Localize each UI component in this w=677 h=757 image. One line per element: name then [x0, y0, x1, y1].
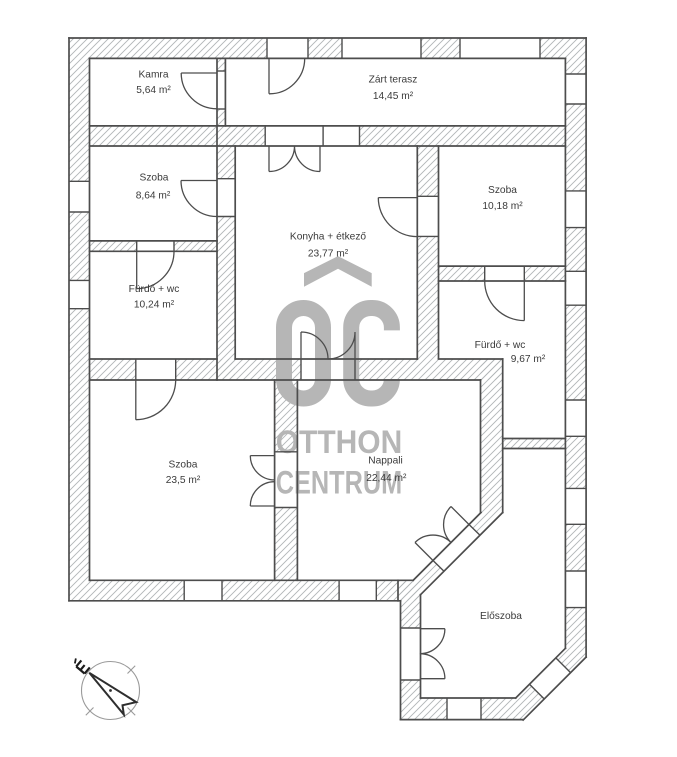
svg-text:9,67 m²: 9,67 m² [511, 354, 546, 365]
svg-text:10,24 m²: 10,24 m² [134, 300, 175, 311]
svg-text:Előszoba: Előszoba [480, 611, 522, 622]
svg-text:14,45 m²: 14,45 m² [373, 91, 414, 102]
svg-text:8,64 m²: 8,64 m² [136, 191, 171, 202]
svg-text:23,5 m²: 23,5 m² [166, 475, 201, 486]
svg-text:5,64 m²: 5,64 m² [136, 85, 171, 96]
svg-text:Konyha + étkező: Konyha + étkező [290, 232, 367, 243]
svg-text:Nappali: Nappali [368, 456, 403, 467]
svg-text:Szoba: Szoba [488, 185, 517, 196]
svg-text:Szoba: Szoba [140, 173, 169, 184]
svg-text:10,18 m²: 10,18 m² [482, 201, 523, 212]
svg-text:Kamra: Kamra [138, 70, 168, 81]
svg-text:22,44 m²: 22,44 m² [366, 473, 407, 484]
svg-text:Zárt terasz: Zárt terasz [369, 75, 418, 86]
svg-text:Szoba: Szoba [169, 460, 198, 471]
svg-text:Fürdő + wc: Fürdő + wc [129, 284, 180, 295]
svg-text:23,77 m²: 23,77 m² [308, 249, 349, 260]
svg-text:Fürdő + wc: Fürdő + wc [475, 340, 526, 351]
